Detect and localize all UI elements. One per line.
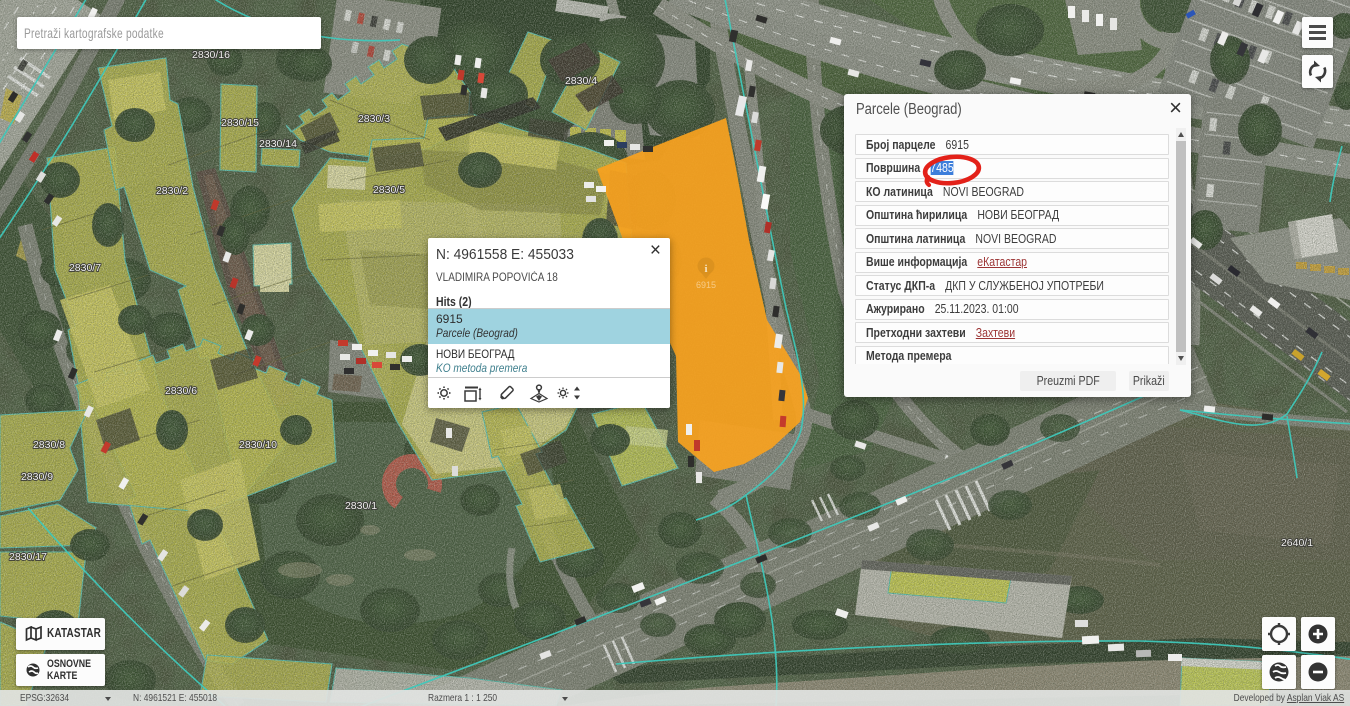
svg-text:2830/8: 2830/8: [33, 439, 65, 451]
svg-text:2830/7: 2830/7: [69, 262, 101, 274]
svg-text:2830/16: 2830/16: [192, 49, 230, 61]
svg-text:2830/1: 2830/1: [345, 500, 377, 512]
svg-text:2640/1: 2640/1: [1281, 537, 1313, 549]
svg-text:2830/6: 2830/6: [165, 385, 197, 397]
svg-text:i: i: [704, 263, 707, 275]
svg-text:2830/3: 2830/3: [358, 113, 390, 125]
svg-text:2830/2: 2830/2: [156, 185, 188, 197]
svg-text:2830/5: 2830/5: [373, 184, 405, 196]
svg-text:2830/15: 2830/15: [221, 117, 259, 129]
svg-text:2830/9: 2830/9: [21, 471, 53, 483]
svg-text:2830/17: 2830/17: [9, 551, 47, 563]
svg-text:2830/10: 2830/10: [239, 439, 277, 451]
svg-text:2830/4: 2830/4: [565, 75, 597, 87]
svg-text:6915: 6915: [696, 280, 716, 290]
svg-text:2830/14: 2830/14: [259, 138, 297, 150]
